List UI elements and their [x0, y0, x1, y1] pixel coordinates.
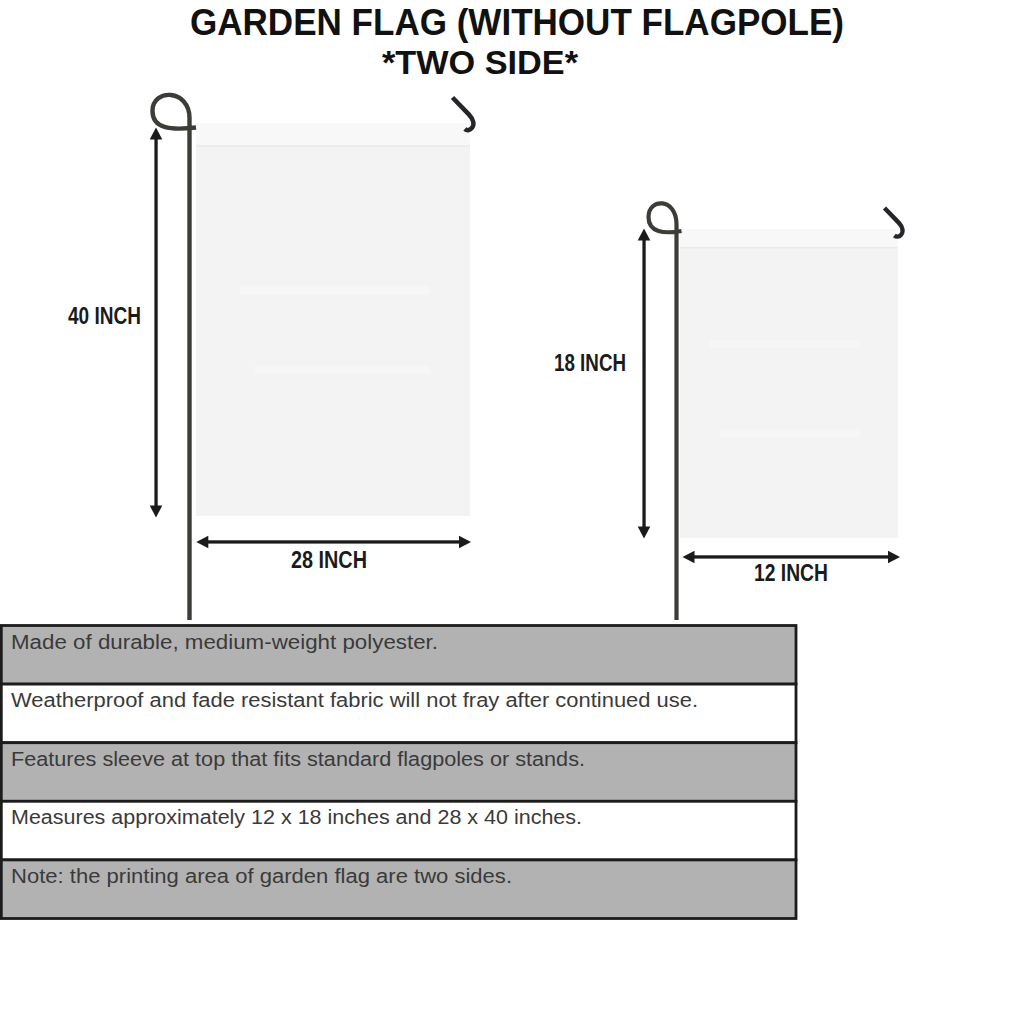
svg-text:Measures approximately 12 x 18: Measures approximately 12 x 18 inches an…	[11, 806, 582, 828]
svg-text:12 INCH: 12 INCH	[754, 559, 828, 586]
svg-text:Weatherproof and fade resistan: Weatherproof and fade resistant fabric w…	[11, 689, 698, 711]
svg-text:*TWO SIDE*: *TWO SIDE*	[382, 44, 578, 81]
svg-text:Made of durable, medium-weight: Made of durable, medium-weight polyester…	[11, 631, 438, 653]
svg-text:18 INCH: 18 INCH	[554, 349, 626, 376]
svg-text:Features sleeve at top that fi: Features sleeve at top that fits standar…	[11, 748, 585, 770]
svg-text:GARDEN FLAG (WITHOUT FLAGPOLE): GARDEN FLAG (WITHOUT FLAGPOLE)	[190, 2, 844, 43]
svg-text:Note: the printing area of gar: Note: the printing area of garden flag a…	[11, 865, 512, 887]
svg-text:40 INCH: 40 INCH	[68, 302, 141, 329]
svg-text:28 INCH: 28 INCH	[291, 546, 367, 573]
